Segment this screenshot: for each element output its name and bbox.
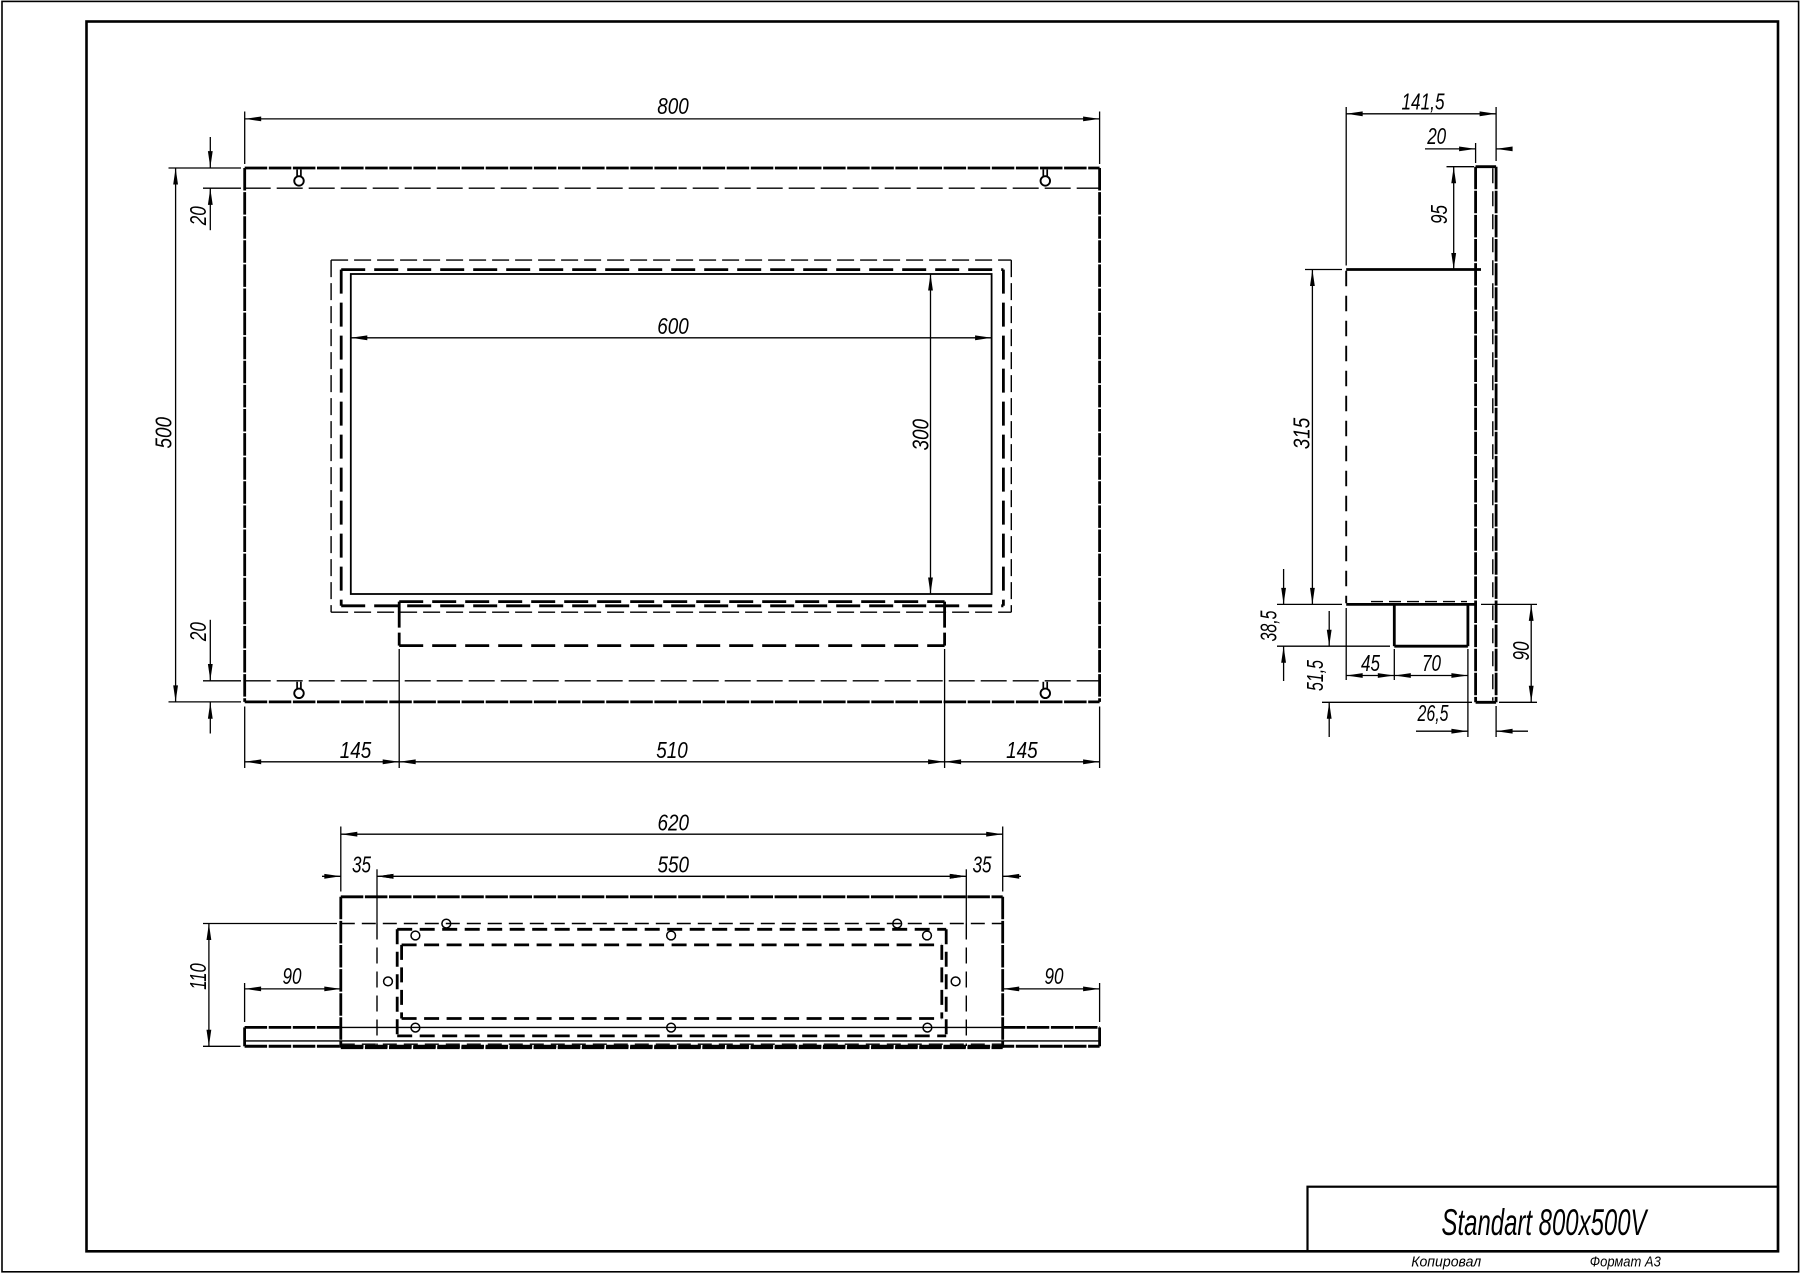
svg-text:35: 35 — [352, 852, 371, 878]
svg-text:45: 45 — [1361, 650, 1380, 676]
svg-text:70: 70 — [1422, 650, 1441, 676]
svg-text:20: 20 — [185, 206, 211, 226]
svg-text:600: 600 — [657, 313, 689, 339]
svg-text:38,5: 38,5 — [1255, 610, 1281, 641]
svg-text:90: 90 — [1508, 641, 1534, 660]
svg-text:90: 90 — [283, 963, 302, 989]
svg-text:620: 620 — [657, 810, 689, 836]
svg-text:145: 145 — [340, 737, 372, 763]
svg-text:Копировал: Копировал — [1411, 1254, 1481, 1271]
svg-text:26,5: 26,5 — [1417, 700, 1449, 726]
svg-text:95: 95 — [1426, 205, 1452, 224]
svg-text:90: 90 — [1045, 963, 1064, 989]
svg-text:550: 550 — [657, 852, 689, 878]
svg-text:300: 300 — [907, 419, 933, 451]
svg-text:145: 145 — [1006, 737, 1038, 763]
svg-text:20: 20 — [185, 622, 211, 642]
svg-text:110: 110 — [185, 963, 211, 990]
svg-text:Standart 800x500V: Standart 800x500V — [1442, 1202, 1649, 1243]
svg-text:510: 510 — [656, 737, 688, 763]
svg-text:800: 800 — [657, 93, 689, 119]
svg-text:20: 20 — [1426, 123, 1446, 149]
svg-text:51,5: 51,5 — [1302, 660, 1328, 691]
svg-text:141,5: 141,5 — [1402, 88, 1445, 114]
svg-text:35: 35 — [973, 852, 992, 878]
svg-text:315: 315 — [1288, 418, 1314, 450]
svg-text:500: 500 — [150, 417, 176, 449]
svg-text:Формат А3: Формат А3 — [1590, 1254, 1662, 1271]
